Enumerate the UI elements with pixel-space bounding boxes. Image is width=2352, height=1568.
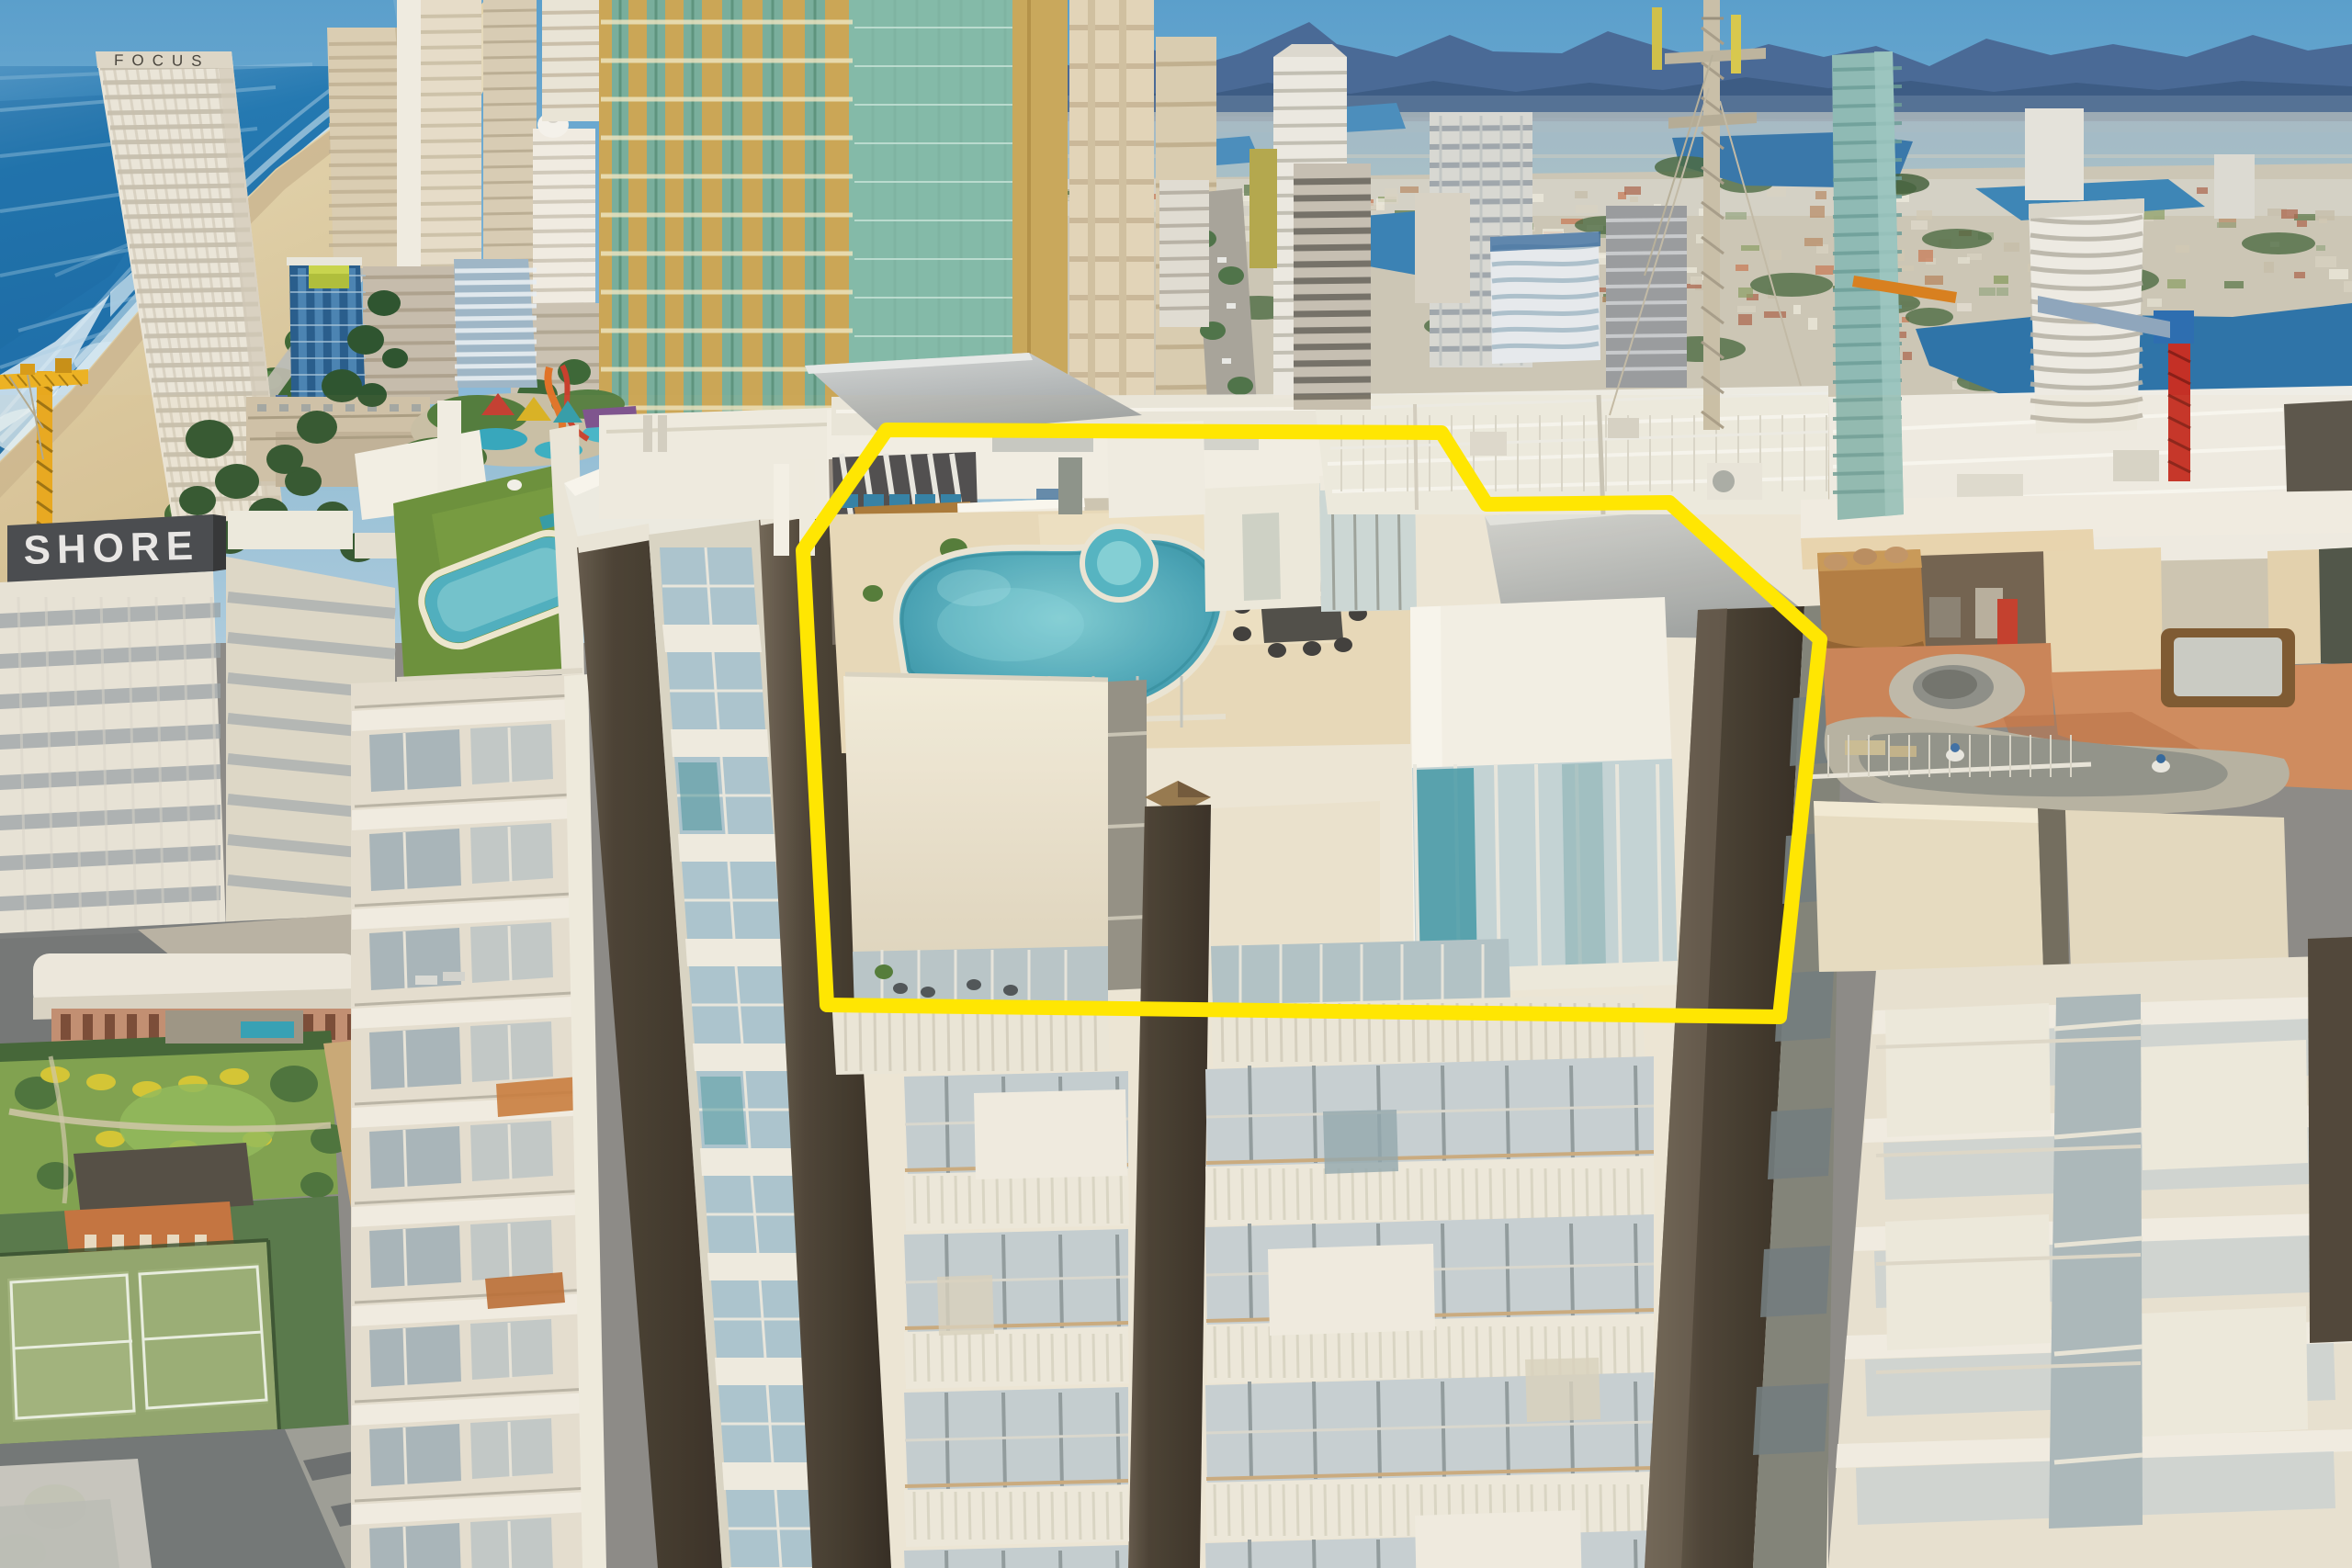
svg-text:FOCUS: FOCUS [114,51,210,70]
